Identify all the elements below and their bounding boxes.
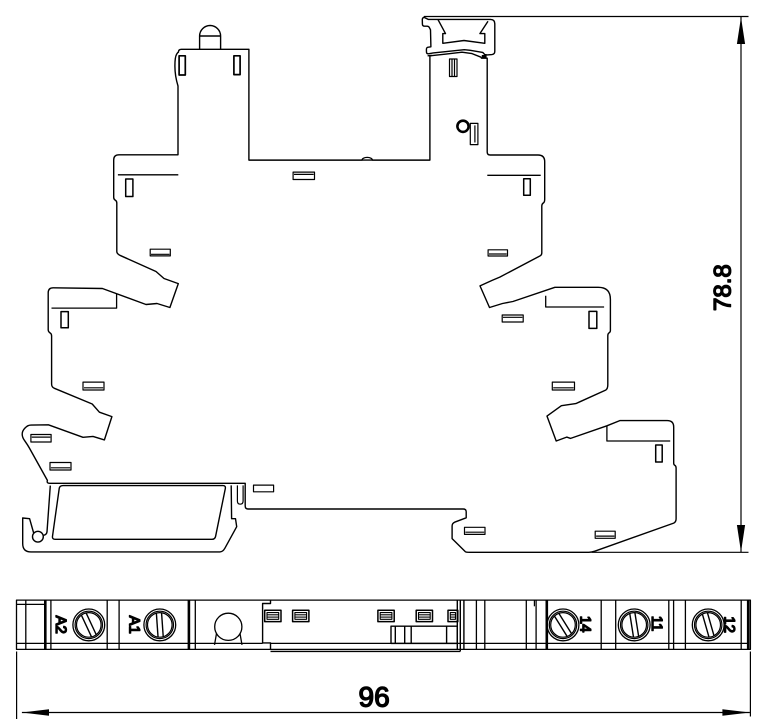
svg-text:12: 12 <box>721 616 738 633</box>
svg-text:78.8: 78.8 <box>710 264 737 311</box>
svg-text:14: 14 <box>577 616 594 633</box>
svg-text:11: 11 <box>648 616 665 632</box>
svg-text:A2: A2 <box>52 616 69 634</box>
svg-text:96: 96 <box>359 681 390 712</box>
svg-text:A1: A1 <box>126 616 143 634</box>
